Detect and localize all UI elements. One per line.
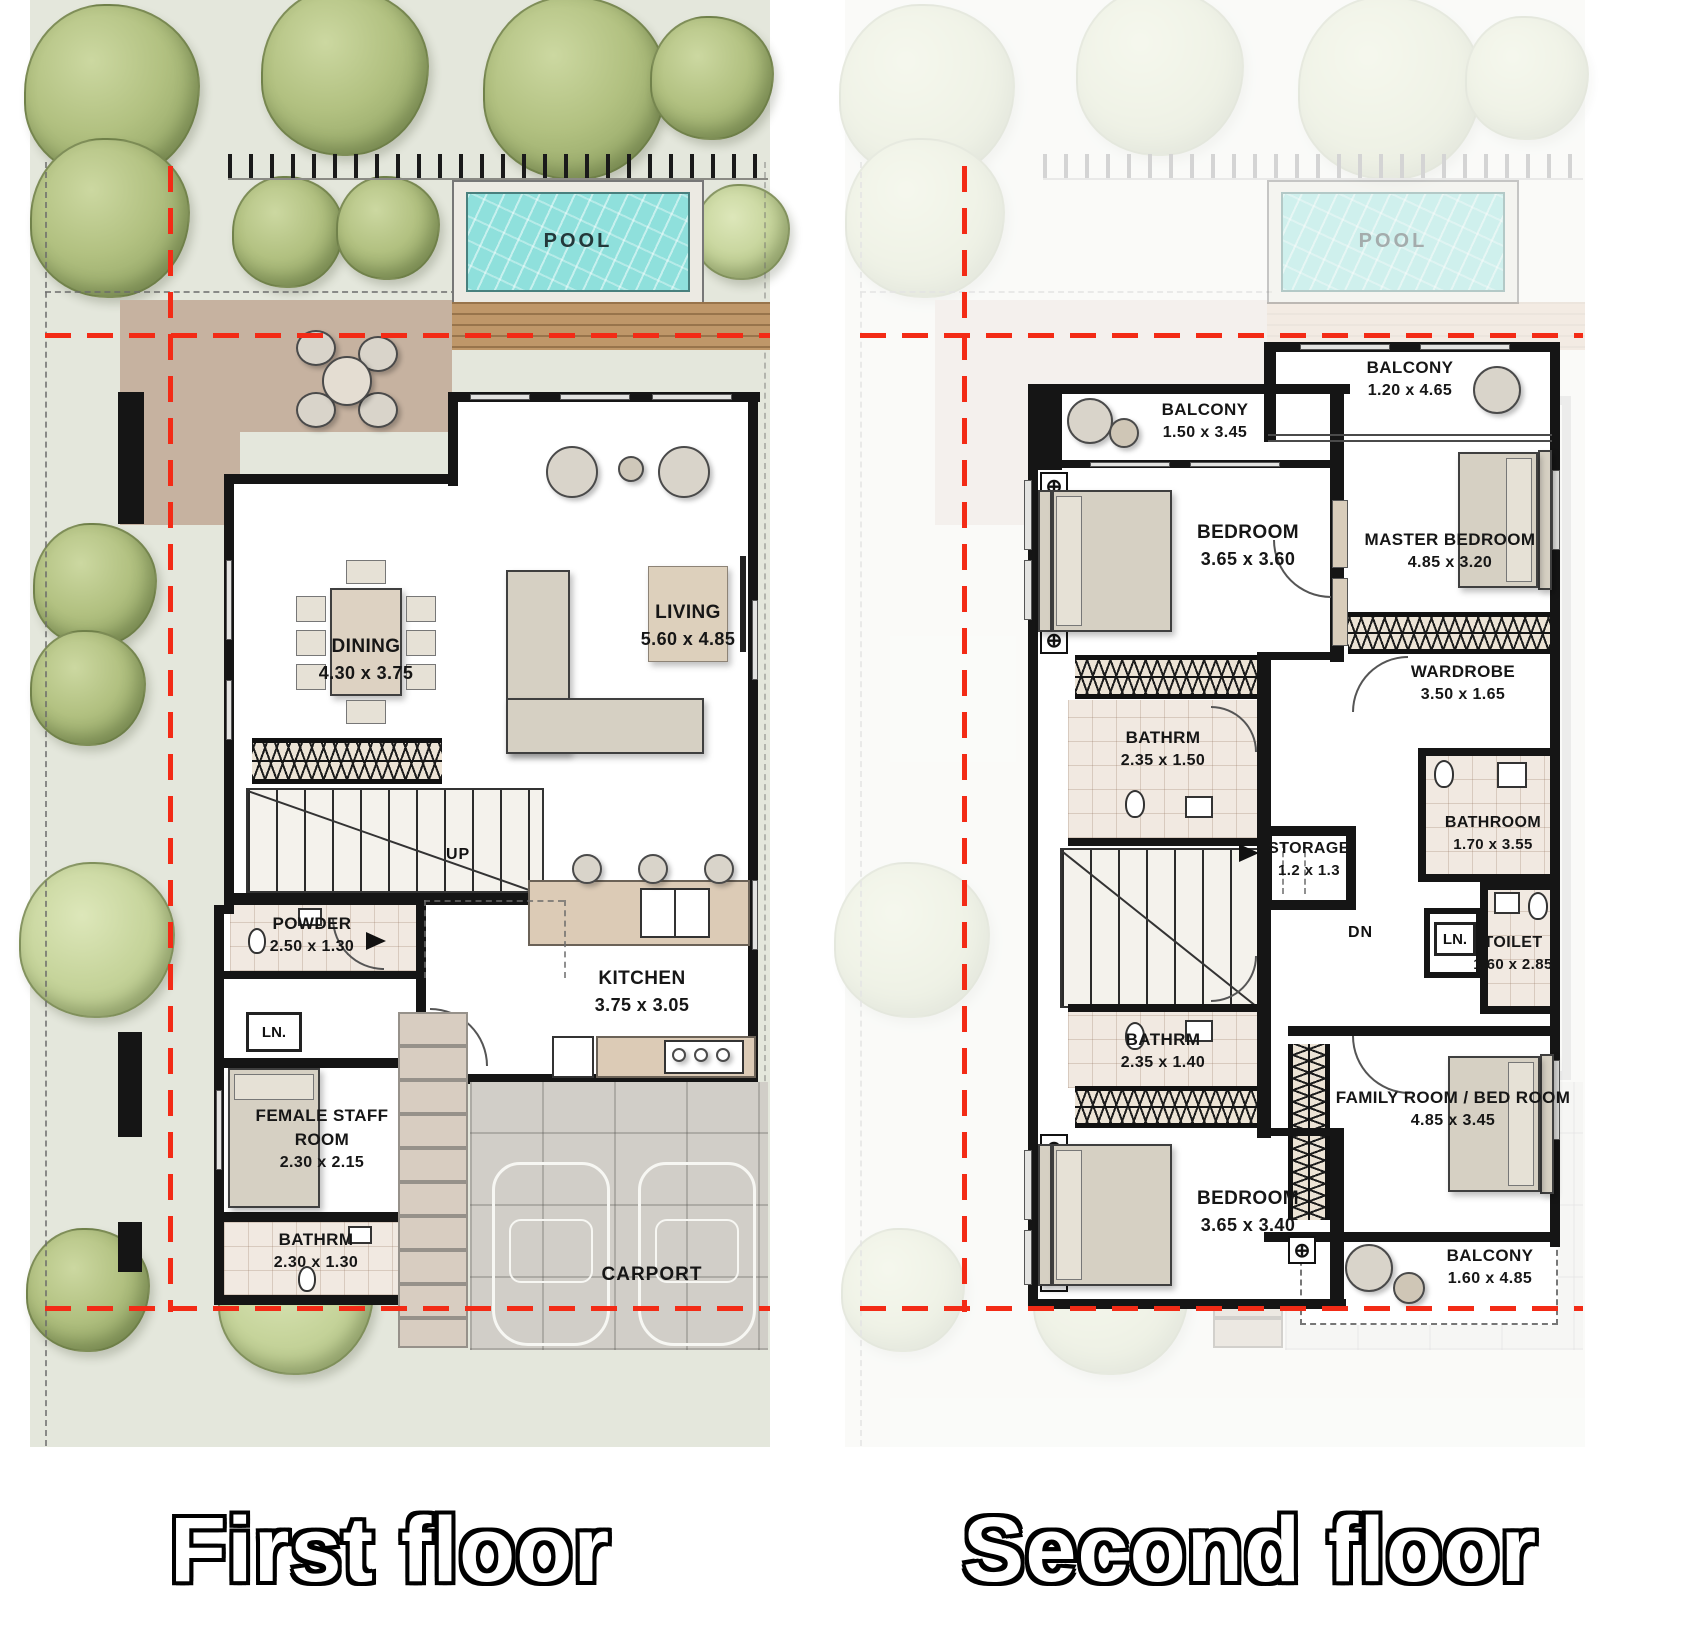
- window: [1024, 480, 1032, 550]
- side-table: [618, 456, 644, 482]
- wall: [1068, 838, 1268, 846]
- balcony-chair: [1067, 398, 1113, 444]
- ghost-boundary: [860, 291, 1272, 293]
- wall: [214, 1295, 426, 1305]
- bed-headboard: [1538, 450, 1552, 590]
- ghost-pool-label: POOL: [1359, 230, 1428, 253]
- path-tiles: [398, 1012, 468, 1348]
- window: [470, 394, 530, 400]
- bathrm-bottom-label: BATHRM 2.35 x 1.40: [1121, 1028, 1205, 1074]
- second-floor-panel: POOL: [845, 0, 1689, 1632]
- bed-headboard: [1038, 490, 1052, 632]
- balcony-bottom-label: BALCONY 1.60 x 4.85: [1447, 1244, 1534, 1290]
- tree: [694, 184, 790, 280]
- bed-pillow: [1056, 1150, 1082, 1280]
- linen-closet: LN.: [1434, 922, 1476, 956]
- wall: [224, 893, 554, 905]
- plot-boundary-dashed: [45, 291, 457, 293]
- storage-label: STORAGE 1.2 x 1.3: [1268, 838, 1350, 881]
- balcony-chair: [1473, 366, 1521, 414]
- window: [560, 394, 630, 400]
- sink-divider: [674, 890, 676, 936]
- closet-hatch: [252, 738, 442, 784]
- wardrobe-hatch: [1348, 612, 1550, 654]
- void-dashed-outline: [424, 900, 426, 978]
- wall: [1330, 1128, 1344, 1308]
- carport-label: CARPORT: [602, 1264, 703, 1286]
- sink-icon: [1185, 796, 1213, 818]
- window: [1024, 1230, 1032, 1285]
- toilet-label: TOILET 1.60 x 2.85: [1473, 932, 1552, 975]
- balcony-right-label: BALCONY 1.20 x 4.65: [1367, 356, 1454, 402]
- dining-chair: [346, 560, 386, 584]
- wall: [1257, 652, 1344, 660]
- window: [226, 680, 232, 740]
- car-cabin: [509, 1219, 593, 1283]
- wall: [448, 392, 458, 486]
- sink-icon: [1497, 762, 1527, 788]
- ghost-fence: [1043, 154, 1583, 180]
- b edroom-top-label: BEDROOM 3.65 x 3.60: [1197, 520, 1299, 572]
- wall: [1257, 1128, 1344, 1136]
- kitchen-counter: [528, 880, 750, 946]
- armchair: [658, 446, 710, 498]
- balcony-table: [1109, 418, 1139, 448]
- linen-closet: LN.: [246, 1012, 302, 1052]
- balcony-railing: [1268, 440, 1552, 442]
- ghost-boundary: [860, 162, 862, 1446]
- tv-panel: [740, 556, 746, 652]
- dining-chair: [296, 596, 326, 622]
- ghost-tree: [1465, 16, 1589, 140]
- balcony-railing: [1268, 434, 1552, 436]
- window: [1300, 344, 1390, 350]
- wall: [1264, 342, 1276, 442]
- balcony-table: [1393, 1272, 1425, 1304]
- tree: [336, 176, 440, 280]
- second-floor-title: Second floor: [940, 1498, 1560, 1603]
- window: [1024, 560, 1032, 620]
- storage-arrow-icon: [1239, 844, 1259, 862]
- bar-stool: [638, 854, 668, 884]
- burner: [716, 1048, 730, 1062]
- setback-line-red: [45, 1306, 770, 1311]
- bathrm-top-label: BATHRM 2.35 x 1.50: [1121, 726, 1205, 772]
- car-outline: [492, 1162, 610, 1346]
- stairs-direction-label: UP: [446, 846, 470, 864]
- void-dashed-outline: [424, 900, 564, 902]
- bathrm-label: BATHRM 2.30 x 1.30: [274, 1228, 358, 1274]
- burner: [694, 1048, 708, 1062]
- burner: [672, 1048, 686, 1062]
- dining-chair: [346, 700, 386, 724]
- tree: [19, 862, 175, 1018]
- window: [652, 394, 732, 400]
- wall: [1288, 1026, 1560, 1036]
- wall: [1068, 1004, 1268, 1012]
- wall: [214, 1212, 426, 1222]
- window: [1552, 470, 1560, 550]
- stair-diagonal: [247, 790, 546, 897]
- door-panel: [1332, 500, 1348, 568]
- balcony-left-label: BALCONY 1.50 x 3.45: [1162, 398, 1249, 444]
- toilet-icon: [248, 928, 266, 954]
- tree: [232, 176, 344, 288]
- kitchen-cabinet: [552, 1036, 594, 1078]
- column-marker-icon: ⊕: [1288, 1236, 1316, 1264]
- stairs-direction-label: DN: [1348, 924, 1373, 942]
- door-panel: [1332, 578, 1348, 646]
- window: [1090, 462, 1170, 467]
- window: [1024, 1150, 1032, 1220]
- terrace-table: [322, 356, 372, 406]
- ghost-tree: [845, 138, 1005, 298]
- sink-icon: [1494, 892, 1520, 914]
- window: [752, 600, 758, 680]
- bed-headboard: [1038, 1144, 1052, 1286]
- wall: [1032, 460, 1344, 468]
- garden-wall: [118, 1222, 142, 1272]
- fence-hedge: [228, 154, 768, 180]
- wall: [214, 1058, 426, 1068]
- tree: [30, 630, 146, 746]
- setback-line-red: [168, 166, 173, 1312]
- toilet-icon: [1434, 760, 1454, 788]
- garden-wall: [118, 1032, 142, 1137]
- tree: [650, 16, 774, 140]
- bedroom-bottom-label: BEDROOM 3.65 x 3.40: [1197, 1186, 1299, 1238]
- wardrobe-label: WARDROBE 3.50 x 1.65: [1411, 660, 1515, 706]
- tree: [33, 523, 157, 647]
- wall: [1058, 384, 1350, 394]
- wall: [224, 474, 458, 484]
- dining-label: DINING 4.30 x 3.75: [319, 634, 413, 686]
- staff-room-label: FEMALE STAFF ROOM 2.30 x 2.15: [247, 1104, 397, 1174]
- wall: [224, 971, 424, 979]
- window: [226, 560, 232, 640]
- bathroom-label: BATHROOM 1.70 x 3.55: [1445, 812, 1541, 855]
- wall: [748, 392, 758, 1084]
- toilet-icon: [1125, 790, 1145, 818]
- dining-chair: [406, 596, 436, 622]
- pool-label: POOL: [544, 230, 613, 253]
- floorplan-canvas: POOL UP: [0, 0, 1689, 1632]
- sofa: [506, 698, 704, 754]
- living-label: LIVING 5.60 x 4.85: [641, 600, 735, 652]
- kitchen-label: KITCHEN 3.75 x 3.05: [595, 966, 689, 1018]
- bar-stool: [572, 854, 602, 884]
- family-room-label: FAMILY ROOM / BED ROOM 4.85 x 3.45: [1336, 1086, 1571, 1132]
- window: [216, 1090, 222, 1170]
- bed-pillow: [1056, 496, 1082, 626]
- toilet-icon: [1528, 892, 1548, 920]
- window: [752, 880, 758, 950]
- armchair: [546, 446, 598, 498]
- plot-boundary-dashed: [45, 162, 47, 1446]
- garden-wall: [118, 392, 144, 524]
- tree: [30, 138, 190, 298]
- car-outline: [638, 1162, 756, 1346]
- wardrobe-hatch: [1075, 1086, 1263, 1128]
- bed-pillow: [234, 1074, 314, 1100]
- bar-stool: [704, 854, 734, 884]
- window: [1190, 462, 1280, 467]
- setback-line-red: [45, 333, 770, 338]
- first-floor-title: First floor: [140, 1498, 640, 1603]
- balcony-chair: [1345, 1244, 1393, 1292]
- setback-line-red: [860, 1306, 1583, 1311]
- wood-deck: [438, 302, 770, 350]
- window: [1420, 344, 1510, 350]
- void-dashed-outline: [564, 900, 566, 978]
- powder-label: POWDER 2.50 x 1.30: [270, 912, 354, 958]
- master-bedroom-label: MASTER BEDROOM 4.85 x 3.20: [1365, 528, 1536, 574]
- setback-line-red: [962, 166, 967, 1312]
- staircase: [246, 788, 544, 893]
- setback-line-red: [860, 333, 1583, 338]
- entry-arrow-icon: [366, 932, 386, 950]
- wardrobe-hatch: [1075, 655, 1263, 699]
- first-floor-panel: POOL UP: [0, 0, 845, 1632]
